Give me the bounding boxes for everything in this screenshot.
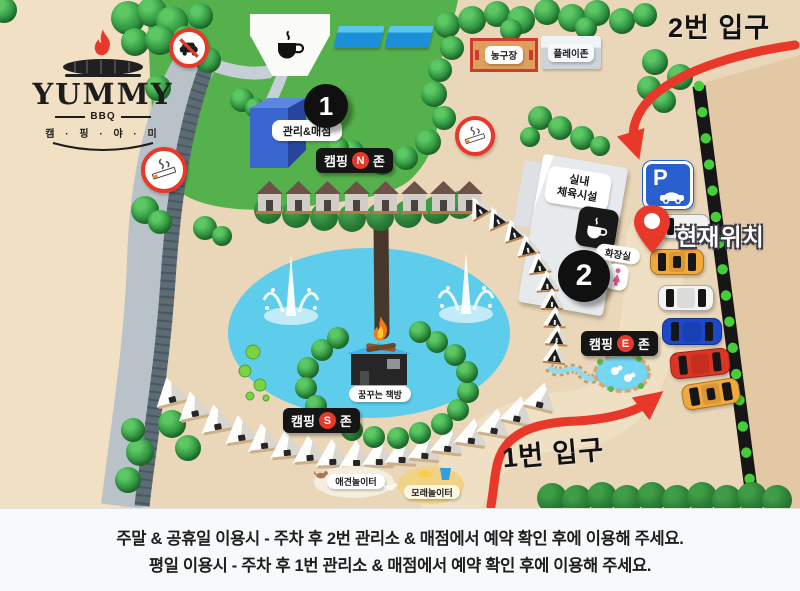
dog-icon: [313, 468, 329, 480]
cabin: [314, 181, 341, 214]
zone-e-letter: E: [617, 335, 634, 352]
cabin: [430, 181, 457, 214]
zone-s-suffix: 존: [340, 411, 352, 430]
sand-pile-icon: [416, 466, 434, 478]
notice-line-1: 주말 & 공휴일 이용시 - 주차 후 2번 관리소 & 매점에서 예약 확인 …: [116, 525, 683, 549]
tree: [458, 6, 486, 34]
cabin: [343, 181, 370, 214]
coffee-cup-icon: [582, 215, 611, 242]
dog-icon: [382, 480, 398, 492]
brand-hangul: 캠 · 핑 · 야 · 미: [28, 125, 178, 140]
entrance-2-label: 2번 입구: [668, 6, 770, 45]
tree: [409, 321, 431, 343]
playzone-label: 플레이존: [548, 44, 595, 62]
tent-e-zone: [542, 341, 568, 365]
campground-map-sign: YUMMY BBQ 캠 · 핑 · 야 · 미 1 관리&매점 캠핑 N 존: [0, 0, 800, 591]
tree: [212, 226, 232, 246]
zone-s-prefix: 캠핑: [291, 411, 315, 430]
smoking-icon: [149, 158, 179, 181]
tree: [409, 422, 431, 444]
coffee-cup-icon: [273, 30, 307, 60]
smoking-sign-right: [455, 116, 495, 156]
brand-sub-row: BBQ: [55, 111, 151, 122]
brand-sub: BBQ: [90, 111, 115, 122]
camping-n-zone-badge: 캠핑 N 존: [316, 148, 393, 173]
tree: [457, 381, 479, 403]
tree: [121, 418, 145, 442]
notice-line-2: 평일 이용시 - 주차 후 1번 관리소 & 매점에서 예약 확인 후에 이용해…: [149, 552, 651, 576]
zone-n-prefix: 캠핑: [324, 151, 348, 170]
location-pin-icon: [632, 203, 672, 255]
duck-pond: [595, 355, 649, 392]
tree: [421, 81, 447, 107]
tree: [642, 49, 668, 75]
cabin: [285, 181, 312, 214]
grill-icon: [61, 58, 145, 78]
tree: [548, 116, 572, 140]
point-1-label: 1: [319, 91, 333, 122]
point-2-label: 2: [576, 259, 593, 293]
parking-sign: P: [643, 161, 693, 209]
camping-s-zone-badge: 캠핑 S 존: [283, 408, 360, 433]
sand-playground-label: 모래놀이터: [404, 485, 460, 499]
tree: [432, 106, 456, 130]
current-location-label: 현재위치: [676, 218, 765, 252]
tree: [428, 58, 452, 82]
tree: [394, 146, 418, 170]
tree: [652, 89, 676, 113]
tree: [534, 0, 560, 25]
basketball-court: 농구장: [470, 38, 538, 72]
dog-playground-label: 애견놀이터: [327, 474, 385, 489]
zone-n-letter: N: [352, 152, 369, 169]
tree: [633, 3, 657, 27]
no-car-icon: [176, 35, 202, 61]
restroom-female-icon: [609, 266, 626, 288]
camping-e-zone-badge: 캠핑 E 존: [581, 331, 658, 356]
current-location-pin: [632, 203, 672, 260]
zone-e-suffix: 존: [638, 334, 650, 353]
smoking-icon: [462, 126, 487, 146]
tree: [590, 136, 610, 156]
smoking-sign-left: [141, 147, 187, 193]
notice-panel: 주말 & 공휴일 이용시 - 주차 후 2번 관리소 & 매점에서 예약 확인 …: [0, 508, 800, 591]
indoor-gym-line2: 체육시설: [556, 185, 598, 205]
tree: [175, 435, 201, 461]
tree: [434, 12, 460, 38]
tree: [363, 426, 385, 448]
tree: [327, 327, 349, 349]
parking-letter: P: [653, 167, 668, 189]
no-car-sign: [169, 28, 209, 68]
tree: [667, 64, 693, 90]
parking-icon: [657, 189, 687, 204]
tree: [126, 438, 154, 466]
logo-arc: [48, 141, 158, 155]
tree: [115, 467, 141, 493]
zone-n-suffix: 존: [373, 151, 385, 170]
zone-s-letter: S: [319, 412, 336, 429]
tree: [297, 357, 319, 379]
tree: [520, 127, 540, 147]
parked-car: [662, 318, 722, 345]
map-area: YUMMY BBQ 캠 · 핑 · 야 · 미 1 관리&매점 캠핑 N 존: [0, 0, 800, 508]
book-house-label: 꿈꾸는 책방: [349, 386, 411, 402]
tree: [387, 427, 409, 449]
tree: [609, 8, 635, 34]
playzone-building: 플레이존: [541, 36, 601, 69]
basketball-label: 농구장: [485, 46, 523, 64]
cabin: [401, 181, 428, 214]
bush: [762, 485, 792, 508]
flame-icon: [86, 28, 120, 60]
parked-car: [658, 285, 714, 311]
cabin: [256, 181, 283, 214]
point-1-marker: 1: [304, 84, 348, 128]
brand-logo: YUMMY BBQ 캠 · 핑 · 야 · 미: [28, 28, 178, 153]
brand-name: YUMMY: [28, 80, 178, 109]
point-2-marker: 2: [558, 250, 610, 302]
blue-canopy-1: [333, 26, 384, 48]
tree: [444, 344, 466, 366]
campfire-icon: [362, 312, 400, 359]
zone-e-prefix: 캠핑: [589, 334, 613, 353]
blue-canopy-2: [384, 26, 433, 48]
tree: [440, 36, 464, 60]
cabin: [372, 181, 399, 214]
tree: [415, 129, 441, 155]
tree: [187, 3, 213, 29]
tree: [148, 210, 172, 234]
gym-cafe-corner: [574, 205, 620, 251]
